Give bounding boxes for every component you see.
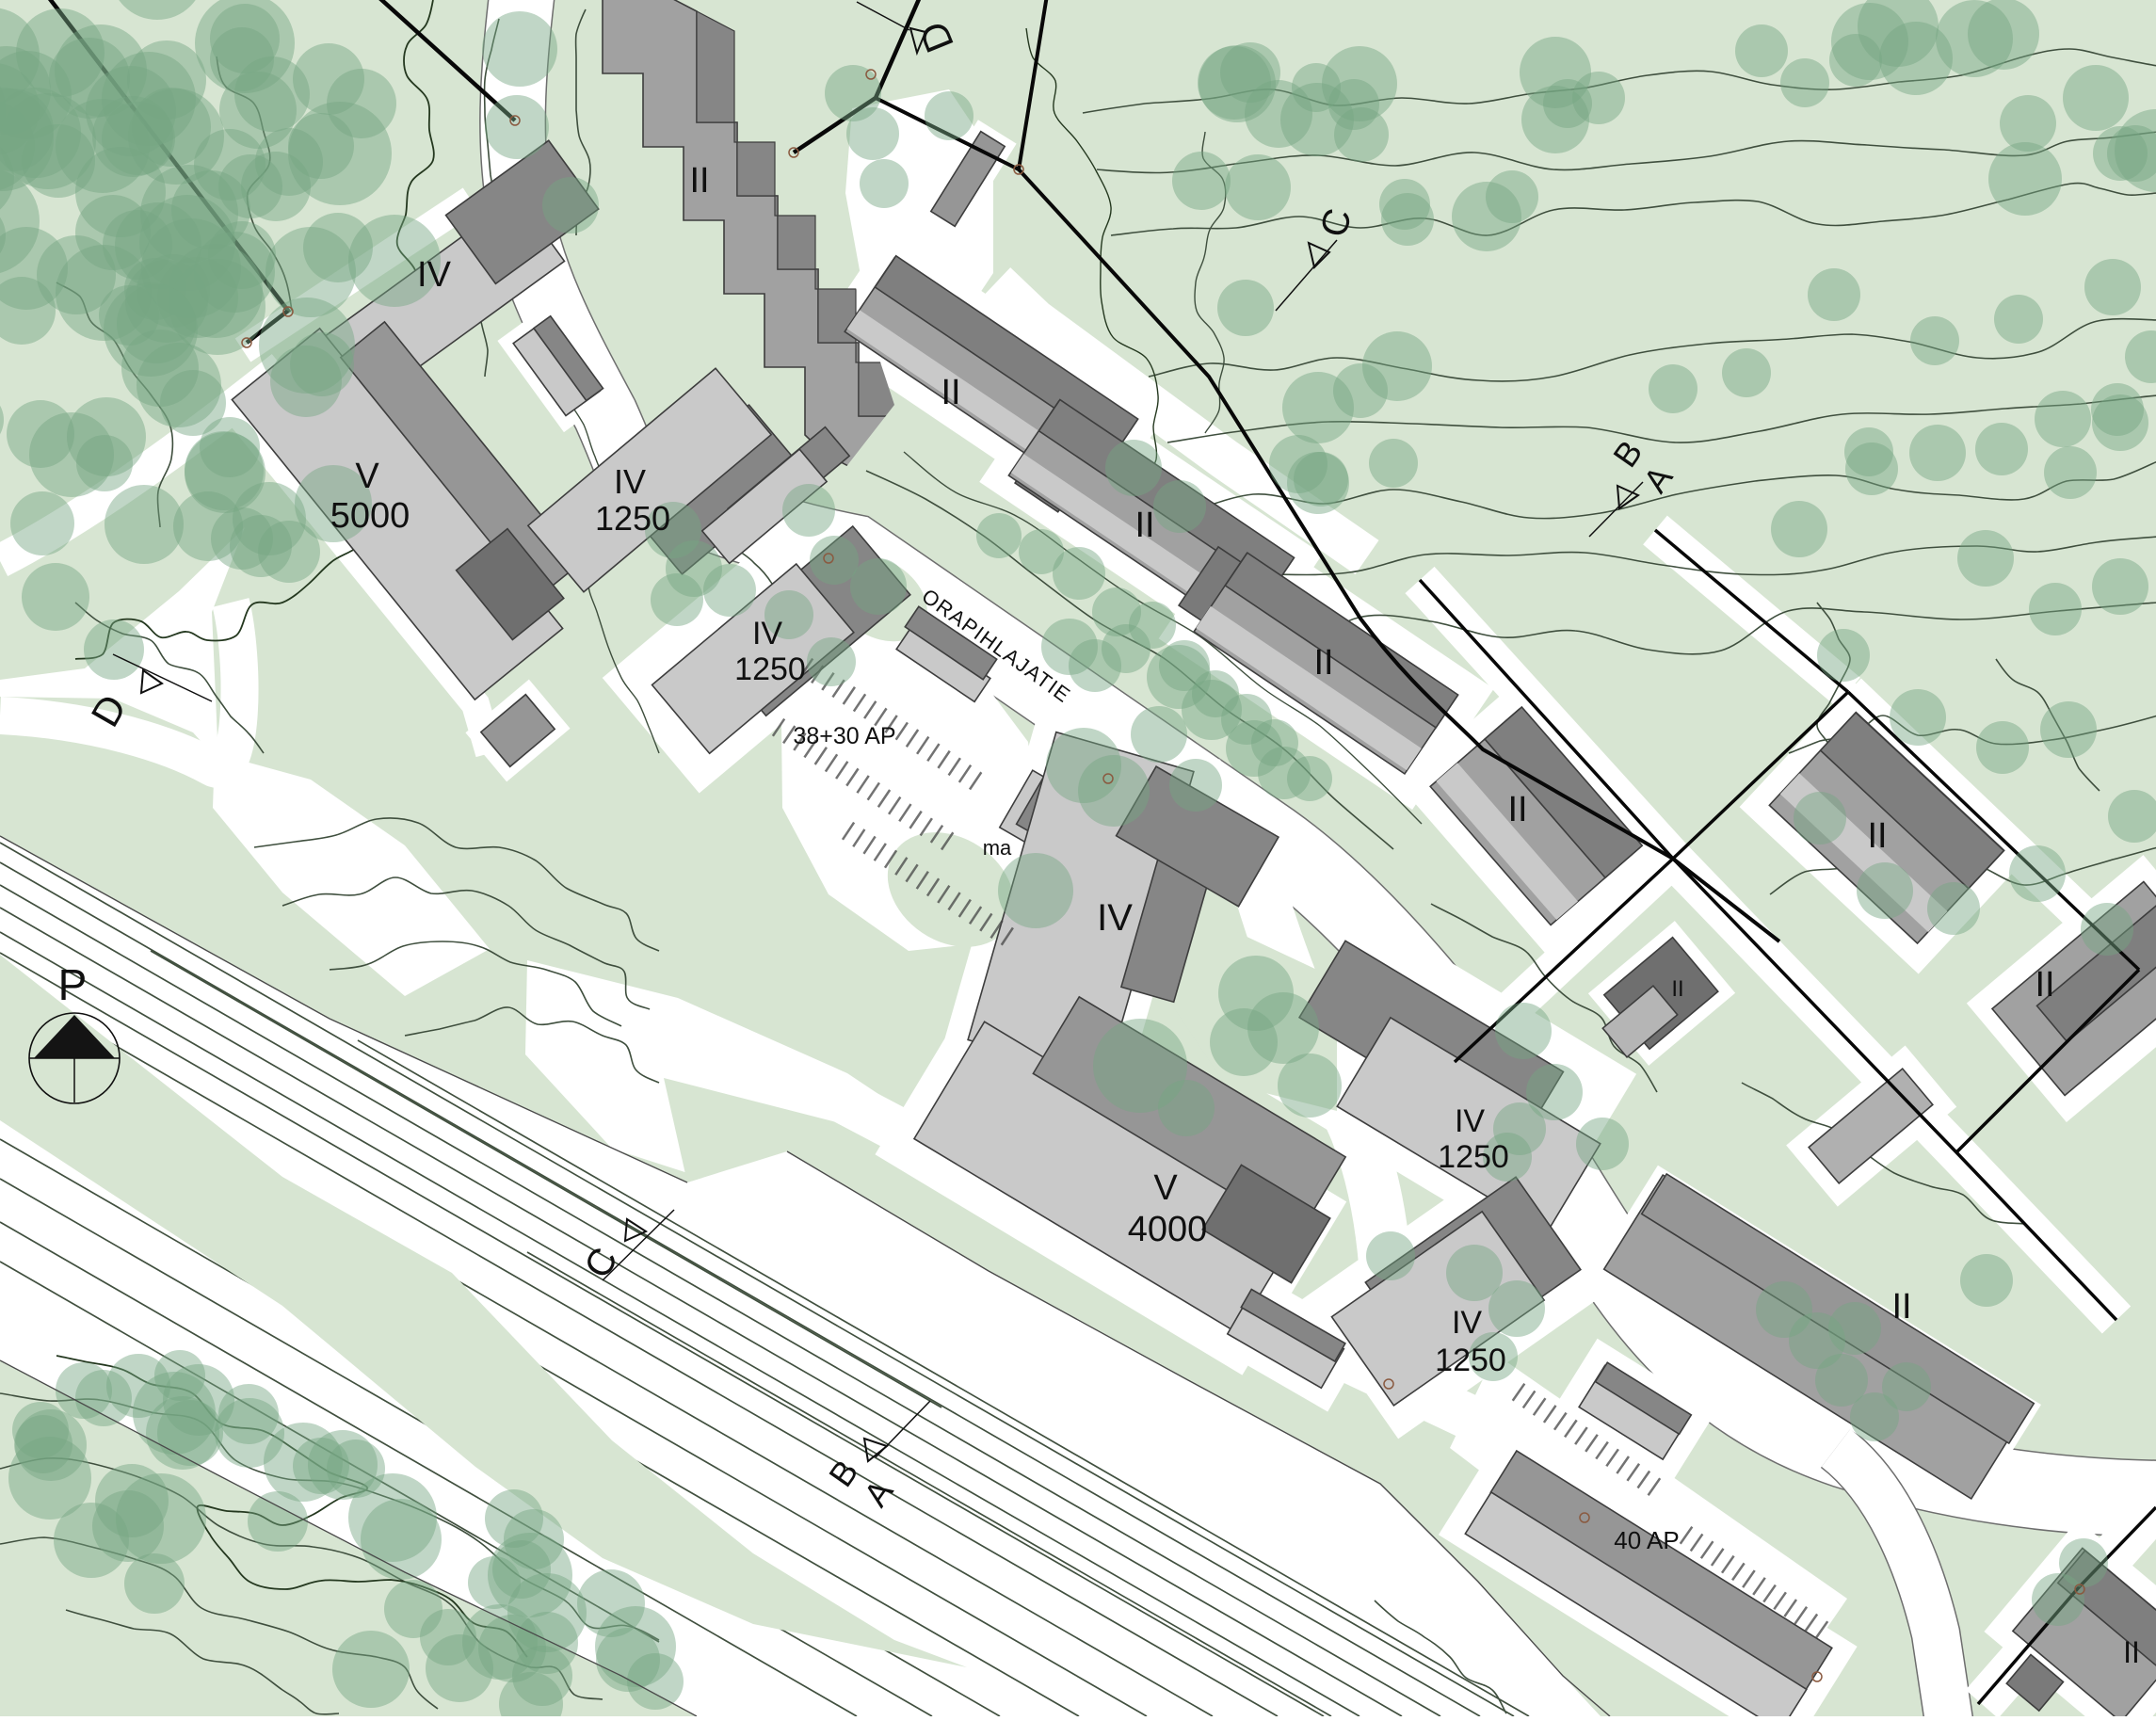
svg-text:II: II	[2035, 965, 2054, 1005]
svg-text:1250: 1250	[1438, 1139, 1509, 1175]
svg-text:IV: IV	[1452, 1305, 1482, 1341]
svg-text:V: V	[355, 457, 379, 496]
svg-text:II: II	[1891, 1287, 1911, 1327]
svg-text:1250: 1250	[734, 651, 806, 687]
svg-text:II: II	[1867, 816, 1887, 856]
svg-text:II: II	[1134, 506, 1154, 545]
svg-text:II: II	[941, 373, 960, 412]
svg-text:II: II	[1313, 643, 1333, 683]
svg-text:P: P	[58, 960, 88, 1009]
svg-text:V: V	[1153, 1168, 1178, 1208]
svg-text:IV: IV	[614, 462, 646, 501]
svg-text:IV: IV	[1455, 1103, 1485, 1139]
svg-text:II: II	[689, 161, 709, 201]
svg-text:II: II	[1507, 790, 1527, 829]
svg-text:1250: 1250	[595, 499, 670, 538]
svg-text:IV: IV	[417, 255, 452, 295]
svg-text:ma: ma	[983, 836, 1012, 860]
svg-text:40 AP: 40 AP	[1614, 1526, 1679, 1554]
svg-text:IV: IV	[1097, 897, 1133, 939]
svg-text:4000: 4000	[1128, 1210, 1208, 1249]
svg-text:38+30 AP: 38+30 AP	[793, 723, 895, 749]
svg-text:II: II	[1671, 976, 1683, 1002]
svg-text:IV: IV	[752, 616, 782, 651]
svg-text:II: II	[2123, 1635, 2140, 1669]
svg-text:5000: 5000	[330, 496, 410, 536]
svg-text:1250: 1250	[1435, 1343, 1506, 1378]
